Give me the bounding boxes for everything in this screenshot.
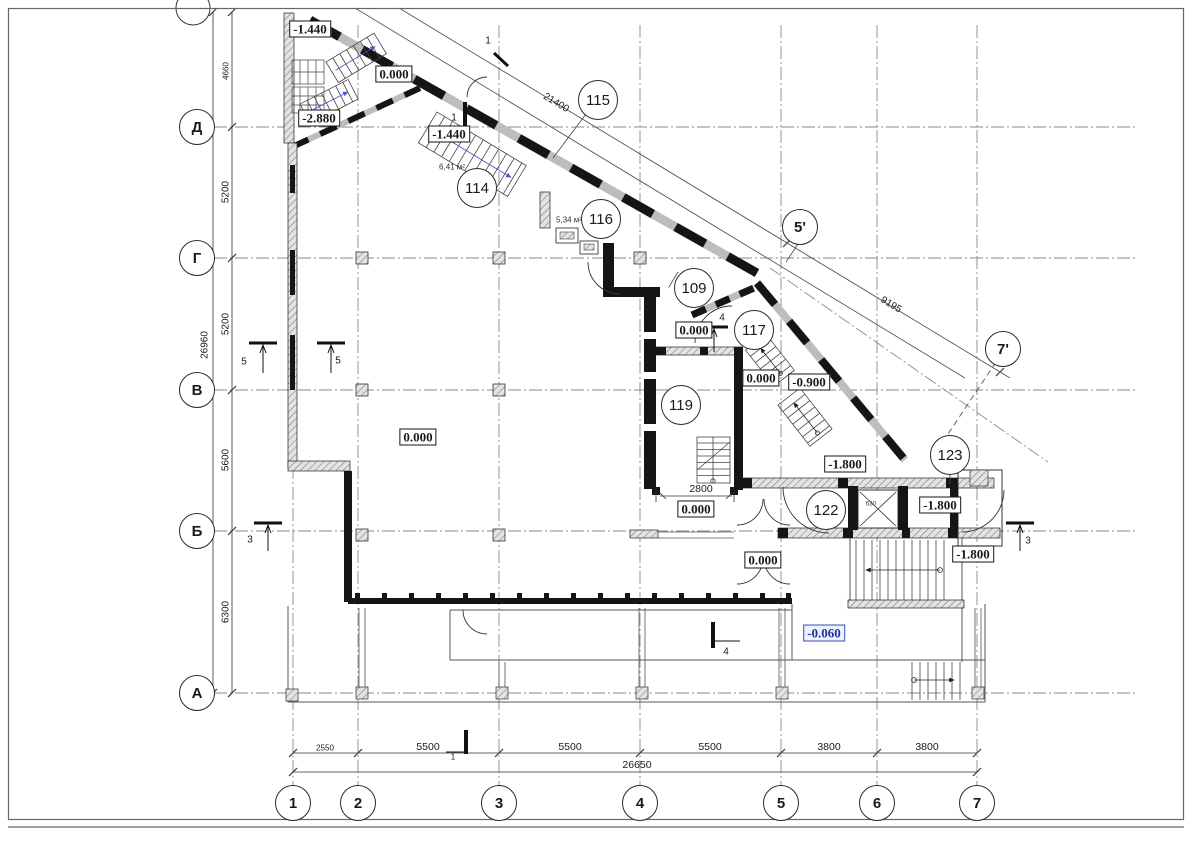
- doors-layer: [463, 77, 1004, 634]
- axis-row-B: Б: [179, 513, 215, 549]
- room-bubble-123: 123: [930, 435, 970, 475]
- porch-columns: [286, 687, 984, 701]
- area-room116: 5,34 м²: [556, 216, 582, 225]
- axis-col-7: 7: [959, 785, 995, 821]
- section-4-mid: 4: [719, 313, 725, 324]
- level-vest117: 0.000: [675, 322, 712, 339]
- section-3-right: 3: [1025, 536, 1031, 547]
- level-lift-lobby: -1.800: [919, 497, 961, 514]
- axis-row-D: Д: [179, 109, 215, 145]
- dim-left-total: 26960: [200, 331, 211, 359]
- area-room114: 6,41 м²: [439, 163, 465, 172]
- section-1-bottom: 1: [451, 753, 455, 762]
- section-marks-layer: [249, 53, 1034, 754]
- dim-bottom-2550: 2550: [316, 744, 334, 753]
- level-stair-right: -1.800: [952, 546, 994, 563]
- section-3-left: 3: [247, 535, 253, 546]
- dim-bottom-5500c: 5500: [698, 741, 721, 753]
- dim-stair-2800: 2800: [689, 483, 712, 495]
- section-4-bottom: 4: [723, 647, 729, 658]
- axis-diag-5p: 5': [782, 209, 818, 245]
- dim-bottom-5500b: 5500: [558, 741, 581, 753]
- room-bubble-109: 109: [674, 268, 714, 308]
- section-5-left-a: 5: [241, 357, 247, 368]
- axis-row-G: Г: [179, 240, 215, 276]
- room-bubble-114: 114: [457, 168, 497, 208]
- axis-col-2: 2: [340, 785, 376, 821]
- room-bubble-116: 116: [581, 199, 621, 239]
- level-stair-mid: 0.000: [375, 66, 412, 83]
- dim-bottom-total: 26650: [622, 759, 651, 771]
- level-ramp: -0.900: [788, 374, 830, 391]
- level-stair-low: -2.880: [298, 110, 340, 127]
- dim-bottom-3800b: 3800: [915, 741, 938, 753]
- room-bubble-117: 117: [734, 310, 774, 350]
- section-5-left-b: 5: [335, 356, 341, 367]
- floor-plan-sheet: Д Г В Б А 1 2 3 4 5 6 7 5' 7' 115 114 11…: [0, 0, 1191, 842]
- level-hall114: -1.440: [428, 126, 470, 143]
- dim-left-6300: 6300: [221, 601, 232, 623]
- level-vest119: 0.000: [677, 501, 714, 518]
- dim-shaft-630: 630: [866, 501, 877, 508]
- dim-left-5200b: 5200: [221, 313, 232, 335]
- dim-left-4660: 4660: [222, 62, 231, 80]
- level-porch: -0.060: [803, 625, 845, 642]
- room-bubble-115: 115: [578, 80, 618, 120]
- level-corr-right: 0.000: [742, 370, 779, 387]
- level-stair-top: -1.440: [289, 21, 331, 38]
- axis-col-1: 1: [275, 785, 311, 821]
- walls-layer: [284, 13, 1002, 662]
- section-1-top: 1: [485, 36, 491, 47]
- room-bubble-119: 119: [661, 385, 701, 425]
- level-vest-lower: 0.000: [744, 552, 781, 569]
- dim-bottom-3800a: 3800: [817, 741, 840, 753]
- axis-row-A: А: [179, 675, 215, 711]
- level-main-hall: 0.000: [399, 429, 436, 446]
- section-1-mid: 1: [451, 113, 457, 124]
- room-bubble-122: 122: [806, 490, 846, 530]
- top-axis-bubble-cut: [176, 0, 210, 25]
- axis-diag-7p: 7': [985, 331, 1021, 367]
- dim-bottom-5500a: 5500: [416, 741, 439, 753]
- axis-row-V: В: [179, 372, 215, 408]
- dim-left-5200a: 5200: [221, 181, 232, 203]
- dim-left-5600: 5600: [221, 449, 232, 471]
- axis-col-4: 4: [622, 785, 658, 821]
- axis-col-3: 3: [481, 785, 517, 821]
- axis-col-5: 5: [763, 785, 799, 821]
- axis-col-6: 6: [859, 785, 895, 821]
- site-lines: [355, 8, 1010, 434]
- level-corr122: -1.800: [824, 456, 866, 473]
